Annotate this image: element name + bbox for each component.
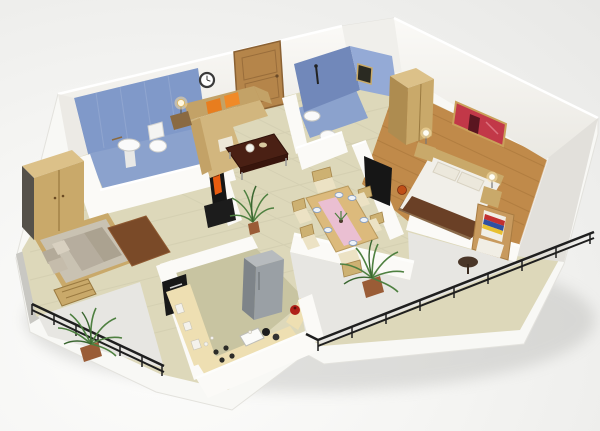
wall-sink [304,111,320,121]
bowl [259,143,267,148]
floor-plan-render [0,0,600,431]
teapot [246,144,254,152]
refrigerator [242,250,284,320]
pan [262,328,270,336]
toilet-bowl [150,140,167,152]
basketball [398,186,407,195]
pedestal-sink [118,139,140,151]
ball-lamp [489,174,496,181]
table-lamp [177,99,184,106]
ball-lamp [423,130,430,137]
shower-head [314,64,318,68]
door-knob [275,74,278,77]
bathroom-2-window [357,64,372,84]
red-pot [290,305,300,315]
pan [273,334,280,341]
wall-clock [200,73,214,87]
